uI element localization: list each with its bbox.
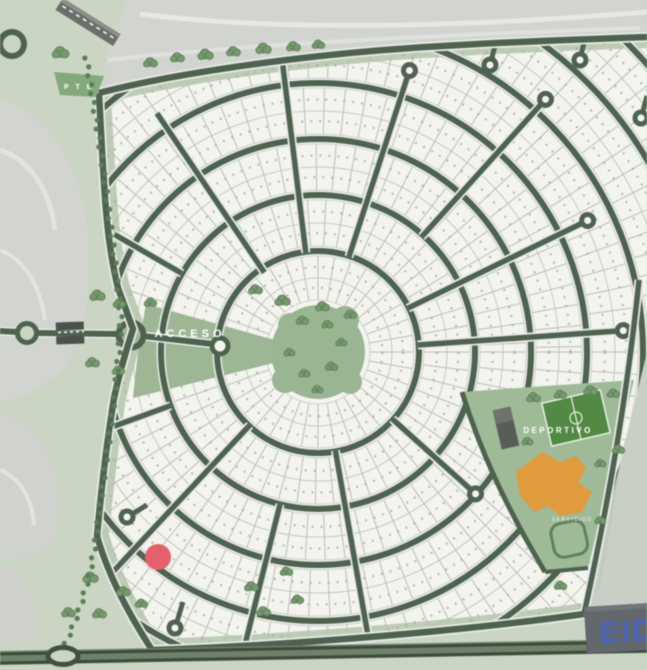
logo-text: EID	[599, 614, 647, 650]
avenue-tree-dot	[118, 296, 123, 301]
avenue-tree-dot	[106, 216, 111, 221]
tree	[284, 351, 289, 356]
tree	[350, 312, 356, 318]
avenue-tree-dot	[85, 582, 90, 587]
pte-area: P T E	[54, 72, 104, 97]
tree	[607, 392, 612, 397]
cul-de-sac	[635, 112, 647, 124]
tree	[534, 395, 541, 402]
tree	[325, 365, 330, 370]
tree	[618, 447, 624, 453]
cul-de-sac	[403, 64, 415, 76]
avenue-tree-dot	[82, 55, 87, 60]
tree	[249, 288, 255, 294]
tree	[256, 47, 263, 54]
tree	[144, 301, 149, 306]
tree	[527, 396, 533, 402]
tree	[554, 584, 559, 589]
tree	[275, 299, 282, 306]
deportivo-label: DEPORTIVO	[523, 426, 593, 435]
tree	[227, 50, 233, 56]
avenue-tree-dot	[119, 314, 124, 319]
tree	[93, 612, 99, 618]
tree	[69, 610, 76, 617]
avenue-tree-dot	[91, 109, 96, 114]
avenue-tree-dot	[117, 350, 122, 355]
tree	[171, 56, 177, 62]
tree	[312, 388, 317, 393]
avenue-tree-dot	[107, 439, 112, 444]
tree	[322, 323, 327, 328]
tree	[316, 305, 322, 311]
avenue-tree-dot	[89, 82, 94, 87]
tree	[62, 611, 68, 617]
avenue-tree-dot	[96, 144, 101, 149]
tree	[527, 439, 533, 445]
tree	[560, 583, 566, 589]
avenue-tree-dot	[110, 251, 115, 256]
tree	[612, 448, 617, 453]
avenue-tree-dot	[95, 118, 100, 123]
avenue-tree-dot	[95, 529, 100, 534]
avenue-tree-dot	[85, 573, 90, 578]
tree	[286, 569, 292, 575]
tree	[560, 392, 566, 398]
avenue-tree-dot	[90, 564, 95, 569]
avenue-tree-dot	[97, 135, 102, 140]
tree	[206, 52, 214, 60]
tree	[287, 45, 293, 51]
tree	[61, 50, 69, 58]
avenue-tree-dot	[113, 377, 118, 382]
tree	[297, 597, 303, 603]
tree	[591, 388, 598, 395]
map-canvas: ACCESO DEPORTIVO SERVICIOS	[0, 0, 647, 670]
avenue-tree-dot	[114, 359, 119, 364]
tree	[317, 387, 323, 393]
avenue-tree-dot	[81, 590, 86, 595]
avenue-tree-dot	[105, 189, 110, 194]
avenue-tree-dot	[104, 198, 109, 203]
avenue-tree-dot	[88, 91, 93, 96]
tree	[302, 318, 308, 324]
avenue-tree-dot	[100, 493, 105, 498]
tree	[144, 61, 150, 67]
avenue-tree-dot	[98, 511, 103, 516]
tree	[245, 585, 251, 591]
tree	[341, 340, 347, 346]
tree	[98, 293, 106, 301]
tree	[117, 590, 123, 596]
tree	[299, 372, 304, 377]
tree	[294, 44, 301, 51]
avenue-tree-dot	[107, 207, 112, 212]
servicios-label: SERVICIOS	[552, 517, 593, 523]
tree	[198, 53, 205, 60]
tree	[331, 364, 337, 370]
avenue-tree-dot	[99, 162, 104, 167]
cul-de-sac	[540, 93, 552, 105]
avenue-tree-dot	[119, 332, 124, 337]
tree	[178, 55, 185, 62]
avenue-tree-dot	[105, 457, 110, 462]
avenue-tree-dot	[116, 368, 121, 373]
avenue-tree-dot	[104, 448, 109, 453]
tree	[312, 43, 317, 48]
avenue-tree-dot	[111, 395, 116, 400]
tree	[141, 601, 147, 607]
tree	[296, 319, 301, 324]
tree	[584, 389, 590, 395]
avenue-tree-dot	[93, 546, 98, 551]
avenue-tree-dot	[75, 607, 80, 612]
avenue-tree-dot	[116, 305, 121, 310]
avenue-tree-dot	[94, 126, 99, 131]
tree	[86, 361, 92, 367]
tree	[600, 518, 606, 524]
cul-de-sac	[121, 511, 133, 523]
avenue-tree-dot	[99, 484, 104, 489]
avenue-tree-dot	[110, 422, 115, 427]
avenue-tree-dot	[100, 153, 105, 158]
tree	[124, 589, 131, 596]
tree	[264, 609, 271, 616]
tree	[150, 300, 156, 306]
avenue-tree-dot	[112, 242, 117, 247]
tree	[91, 575, 99, 583]
avenue-tree-dot	[106, 430, 111, 435]
roundabout	[18, 324, 37, 343]
tree	[304, 371, 310, 377]
avenue-tree-dot	[68, 633, 73, 638]
avenue-tree-dot	[69, 624, 74, 629]
tree	[318, 42, 324, 48]
tree	[600, 461, 606, 467]
avenue-tree-dot	[114, 260, 119, 265]
avenue-tree-dot	[116, 278, 121, 283]
cul-de-sac	[484, 59, 496, 71]
tree	[252, 584, 259, 591]
tree	[289, 350, 295, 356]
tree	[52, 51, 59, 58]
cul-de-sac	[617, 325, 629, 337]
location-marker[interactable]	[145, 544, 171, 570]
avenue-tree-dot	[116, 341, 121, 346]
oval-roundabout	[48, 648, 78, 665]
avenue-tree-dot	[112, 269, 117, 274]
tree	[344, 313, 349, 318]
avenue-tree-dot	[102, 475, 107, 480]
avenue-tree-dot	[85, 73, 90, 78]
tree	[327, 322, 333, 328]
cul-de-sac	[582, 214, 594, 226]
developer-logo: EID	[584, 602, 647, 654]
tree	[256, 287, 263, 294]
tree	[336, 341, 341, 346]
tree	[280, 570, 285, 575]
avenue-tree-dot	[109, 225, 114, 230]
tree	[135, 602, 140, 607]
cul-de-sac	[470, 488, 482, 500]
tree	[151, 60, 158, 67]
tree	[90, 294, 97, 301]
masterplan-map: ACCESO DEPORTIVO SERVICIOS	[0, 0, 647, 670]
tree	[100, 611, 107, 618]
roundabout	[212, 338, 228, 354]
avenue-tree-dot	[92, 537, 97, 542]
avenue-tree-dot	[101, 180, 106, 185]
avenue-tree-dot	[114, 287, 119, 292]
tree	[522, 440, 527, 445]
tree	[595, 462, 600, 467]
avenue-tree-dot	[96, 502, 101, 507]
avenue-tree-dot	[117, 323, 122, 328]
tree	[257, 610, 263, 616]
avenue-tree-dot	[108, 234, 113, 239]
avenue-tree-dot	[75, 616, 80, 621]
tree	[554, 393, 559, 398]
avenue-tree-dot	[108, 413, 113, 418]
tree	[234, 49, 241, 56]
avenue-tree-dot	[101, 466, 106, 471]
tree	[291, 598, 296, 603]
avenue-tree-dot	[112, 404, 117, 409]
cul-de-sac	[574, 54, 586, 66]
tree	[93, 360, 100, 367]
tree	[595, 519, 600, 524]
avenue-tree-dot	[102, 171, 107, 176]
tree	[613, 391, 619, 397]
avenue-tree-dot	[94, 520, 99, 525]
cul-de-sac	[169, 622, 181, 634]
tree	[323, 304, 330, 311]
acceso-label: ACCESO	[154, 328, 225, 340]
avenue-tree-dot	[86, 64, 91, 69]
avenue-tree-dot	[80, 599, 85, 604]
tree	[264, 46, 272, 54]
avenue-tree-dot	[92, 100, 97, 105]
avenue-tree-dot	[89, 555, 94, 560]
avenue-tree-dot	[114, 386, 119, 391]
tree	[283, 298, 291, 306]
